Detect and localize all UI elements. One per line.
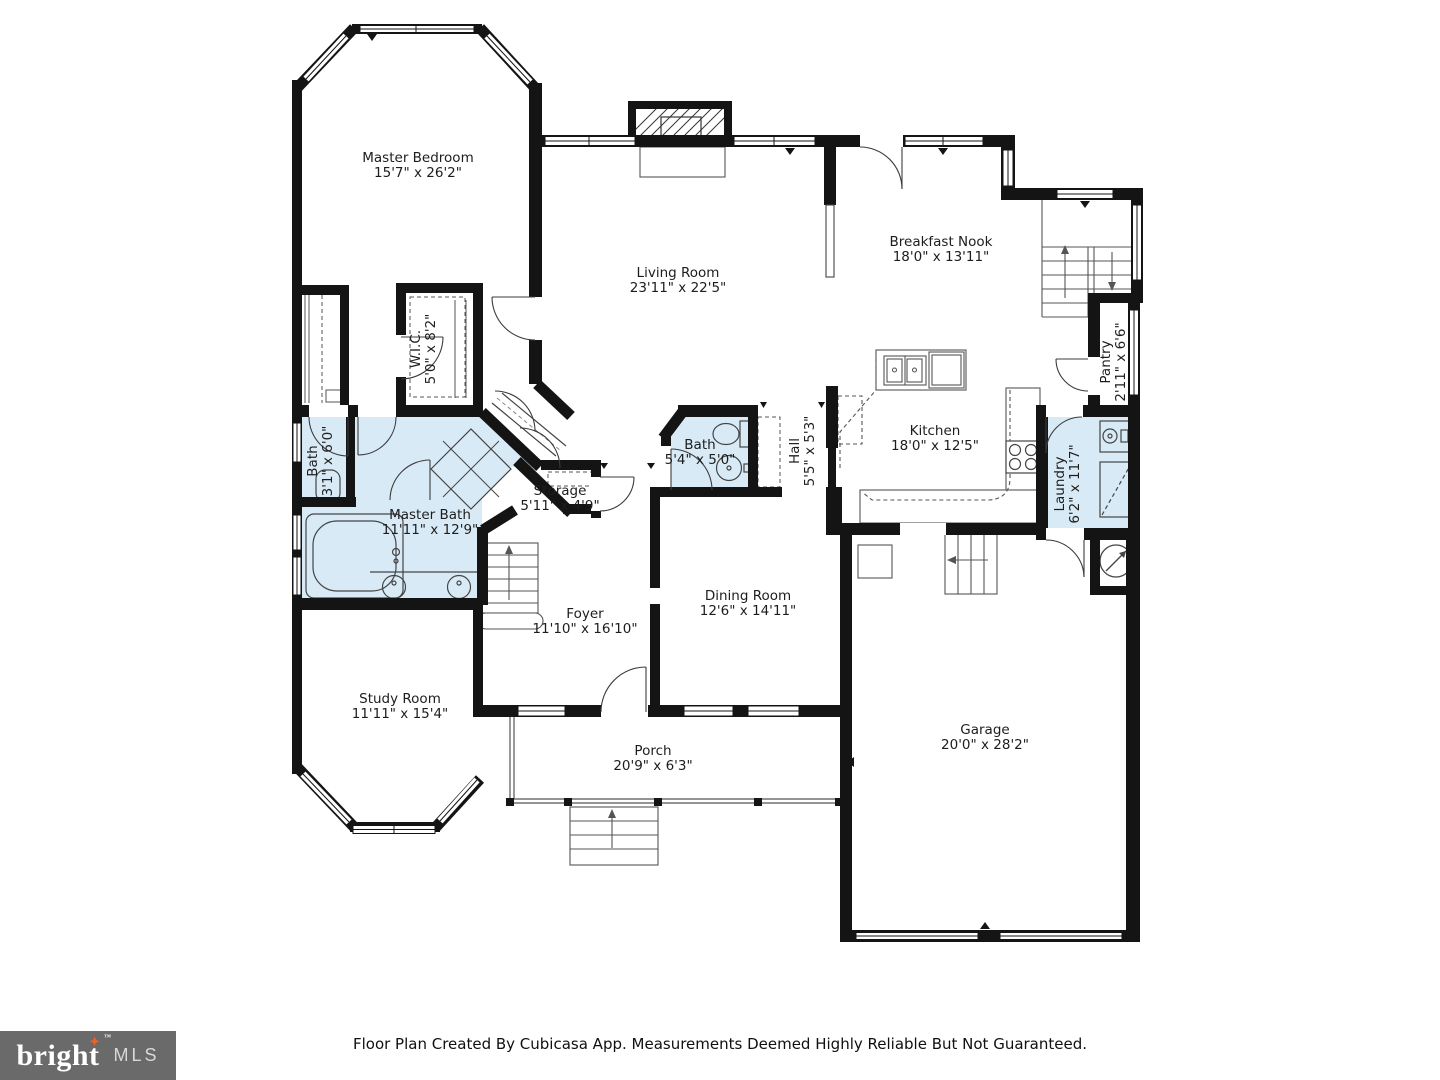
floor-plan-drawing <box>0 0 1440 1080</box>
room-label-breakfast-nook: Breakfast Nook18'0" x 13'11" <box>890 235 993 265</box>
floor-plan-page: Master Bedroom15'7" x 26'2" Living Room2… <box>0 0 1440 1080</box>
room-label-pantry: Pantry2'11" x 6'6" <box>1099 322 1129 401</box>
garage-stairs <box>945 528 997 594</box>
garage-post-box <box>858 545 892 578</box>
room-label-hall: Hall5'5" x 5'3" <box>788 416 818 487</box>
logo-mls-text: MLS <box>114 1045 160 1066</box>
room-label-porch: Porch20'9" x 6'3" <box>613 744 692 774</box>
room-label-foyer: Foyer11'10" x 16'10" <box>532 607 637 637</box>
brightmls-logo: bright✦™ MLS <box>0 1031 176 1080</box>
logo-trademark: ™ <box>104 1034 112 1041</box>
room-label-bath-small: Bath3'1" x 6'0" <box>306 426 336 497</box>
room-label-study-room: Study Room11'11" x 15'4" <box>352 692 449 722</box>
half-wall <box>826 205 834 277</box>
room-label-bath: Bath5'4" x 5'0" <box>665 438 736 468</box>
disclaimer-text: Floor Plan Created By Cubicasa App. Meas… <box>0 1035 1440 1053</box>
stove-cooktop <box>1006 441 1040 473</box>
room-label-laundry: Laundry6'2" x 11'7" <box>1053 444 1083 523</box>
room-label-living-room: Living Room23'11" x 22'5" <box>630 266 727 296</box>
logo-star-icon: ✦ <box>89 1035 100 1048</box>
porch-steps <box>570 807 658 865</box>
room-label-master-bedroom: Master Bedroom15'7" x 26'2" <box>362 151 473 181</box>
room-label-master-bath: Master Bath11'11" x 12'9" <box>382 508 479 538</box>
logo-bright-text: bright✦™ <box>16 1041 99 1071</box>
room-label-garage: Garage20'0" x 28'2" <box>941 723 1029 753</box>
room-label-dining-room: Dining Room12'6" x 14'11" <box>700 589 797 619</box>
room-label-kitchen: Kitchen18'0" x 12'5" <box>891 424 979 454</box>
room-label-wic: W.I.C.5'0" x 8'2" <box>409 314 439 385</box>
room-label-storage: Storage5'11" x 4'9" <box>520 484 599 514</box>
